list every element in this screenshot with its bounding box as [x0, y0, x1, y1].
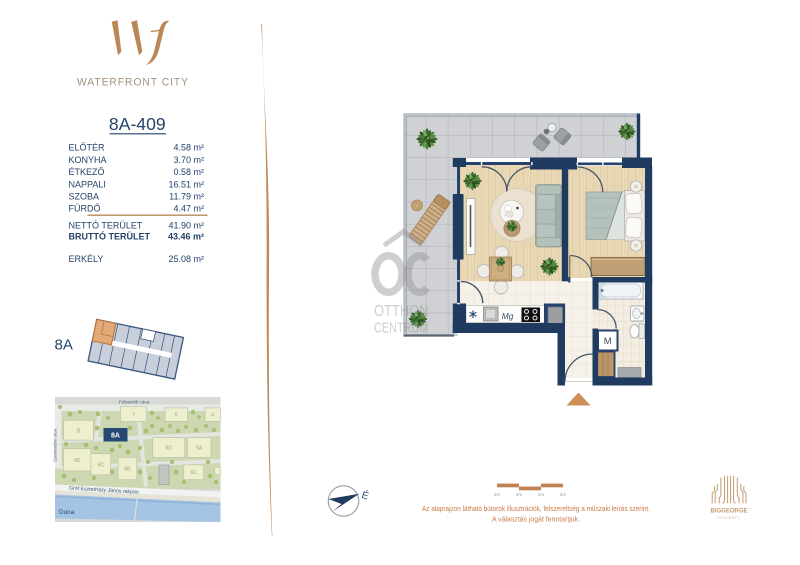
- svg-text:11.79 m²: 11.79 m²: [169, 192, 204, 202]
- svg-text:8A-409: 8A-409: [109, 114, 166, 134]
- svg-text:5B: 5B: [124, 467, 131, 473]
- svg-text:KONYHA: KONYHA: [69, 155, 107, 165]
- svg-text:NAPPALI: NAPPALI: [69, 179, 106, 189]
- svg-text:4D: 4D: [74, 458, 81, 464]
- svg-text:Az alaprajzon látható bútorok: Az alaprajzon látható bútorok illusztrác…: [422, 504, 650, 513]
- svg-text:3m: 3m: [560, 492, 567, 497]
- svg-text:Duna: Duna: [59, 509, 75, 516]
- svg-text:NETTÓ TERÜLET: NETTÓ TERÜLET: [69, 220, 143, 230]
- svg-text:Folyamőr utca: Folyamőr utca: [119, 400, 150, 406]
- svg-text:FÜRDŐ: FÜRDŐ: [69, 203, 101, 213]
- svg-text:M: M: [604, 336, 612, 347]
- svg-text:2m: 2m: [538, 492, 545, 497]
- svg-text:WATERFRONT CITY: WATERFRONT CITY: [77, 77, 189, 89]
- svg-text:5C: 5C: [98, 463, 105, 469]
- svg-text:4.58 m²: 4.58 m²: [173, 143, 204, 153]
- svg-text:ERKÉLY: ERKÉLY: [69, 254, 104, 264]
- svg-text:BIGGEORGE: BIGGEORGE: [711, 508, 749, 515]
- svg-text:SZOBA: SZOBA: [69, 192, 100, 202]
- svg-text:É: É: [360, 488, 371, 503]
- svg-text:BRUTTÓ TERÜLET: BRUTTÓ TERÜLET: [69, 230, 151, 241]
- svg-text:25.08 m²: 25.08 m²: [168, 254, 204, 264]
- svg-text:ÉTKEZŐ: ÉTKEZŐ: [69, 167, 105, 177]
- svg-text:6C: 6C: [190, 470, 197, 476]
- svg-text:Mg: Mg: [502, 311, 514, 321]
- svg-text:1m: 1m: [516, 492, 523, 497]
- svg-text:4: 4: [211, 413, 214, 419]
- svg-text:16.51 m²: 16.51 m²: [168, 179, 204, 189]
- svg-text:ELŐTÉR: ELŐTÉR: [69, 143, 106, 153]
- svg-text:5A: 5A: [196, 446, 203, 452]
- svg-text:CENTRUM: CENTRUM: [374, 321, 429, 337]
- svg-text:43.46 m²: 43.46 m²: [168, 231, 204, 241]
- svg-text:A választás jogát fenntartjuk.: A választás jogát fenntartjuk.: [492, 515, 580, 524]
- svg-text:7: 7: [132, 413, 135, 419]
- svg-text:OTTHON: OTTHON: [374, 303, 429, 320]
- svg-text:4.47 m²: 4.47 m²: [173, 203, 204, 213]
- svg-text:3.70 m²: 3.70 m²: [173, 155, 204, 165]
- svg-text:8A: 8A: [55, 337, 73, 354]
- svg-text:5: 5: [175, 413, 178, 419]
- svg-text:6D: 6D: [166, 446, 173, 452]
- svg-text:41.90 m²: 41.90 m²: [168, 220, 204, 230]
- svg-text:8A: 8A: [111, 432, 120, 439]
- svg-text:Szentendrei utca: Szentendrei utca: [53, 428, 58, 462]
- svg-text:0m: 0m: [494, 492, 501, 497]
- svg-text:PROPERTY: PROPERTY: [718, 516, 741, 520]
- svg-text:0.58 m²: 0.58 m²: [173, 167, 204, 177]
